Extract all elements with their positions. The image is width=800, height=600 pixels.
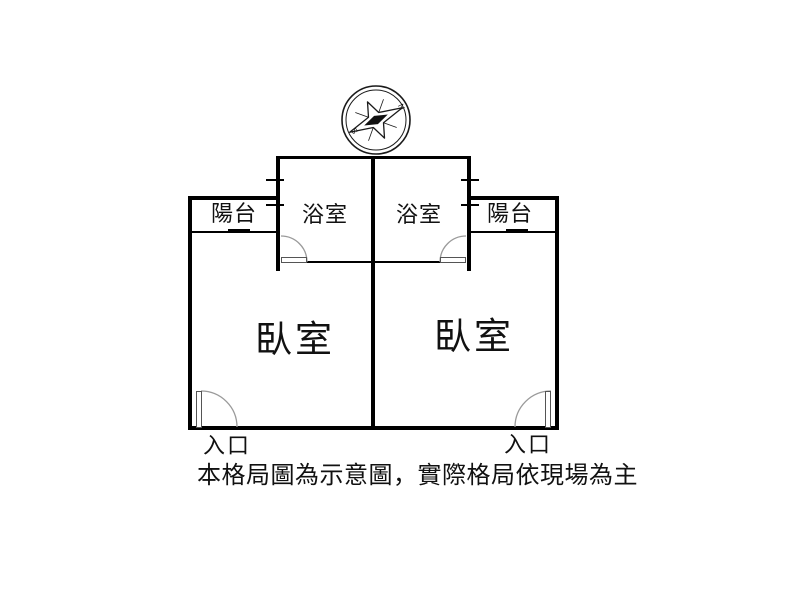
window-tick bbox=[266, 179, 284, 181]
wall-bathroom-right bbox=[467, 156, 471, 271]
disclaimer-text: 本格局圖為示意圖，實際格局依現場為主 bbox=[197, 455, 638, 490]
entrance-door-leaf-right bbox=[545, 391, 551, 428]
balcony-label-right: 陽台 bbox=[487, 196, 533, 228]
bathroom-label-left: 浴室 bbox=[302, 197, 348, 229]
bathroom-door-leaf-left bbox=[281, 257, 307, 263]
entrance-door-leaf-left bbox=[196, 391, 202, 428]
bathroom-door-leaf-right bbox=[440, 257, 466, 263]
entrance-door-arc-left bbox=[201, 391, 237, 427]
balcony-door-segment-right bbox=[506, 229, 528, 233]
window-tick bbox=[461, 179, 479, 181]
window-tick bbox=[266, 204, 284, 206]
balcony-label-left: 陽台 bbox=[211, 196, 257, 228]
floor-plan: N S 陽台 浴室 浴室 陽台 臥室 臥室 入口 入口 本格局圖為示意圖，實際格… bbox=[0, 0, 800, 600]
wall-bathroom-left bbox=[276, 156, 280, 271]
compass-icon: N S bbox=[339, 83, 413, 157]
compass-south-label: S bbox=[349, 127, 359, 136]
bathroom-label-right: 浴室 bbox=[396, 197, 442, 229]
line-bathroom-bottom bbox=[307, 261, 441, 263]
bedroom-label-left: 臥室 bbox=[255, 309, 335, 363]
balcony-door-segment-left bbox=[228, 229, 250, 233]
window-tick bbox=[461, 204, 479, 206]
bedroom-label-right: 臥室 bbox=[434, 306, 514, 360]
wall-center-divider bbox=[371, 156, 375, 430]
